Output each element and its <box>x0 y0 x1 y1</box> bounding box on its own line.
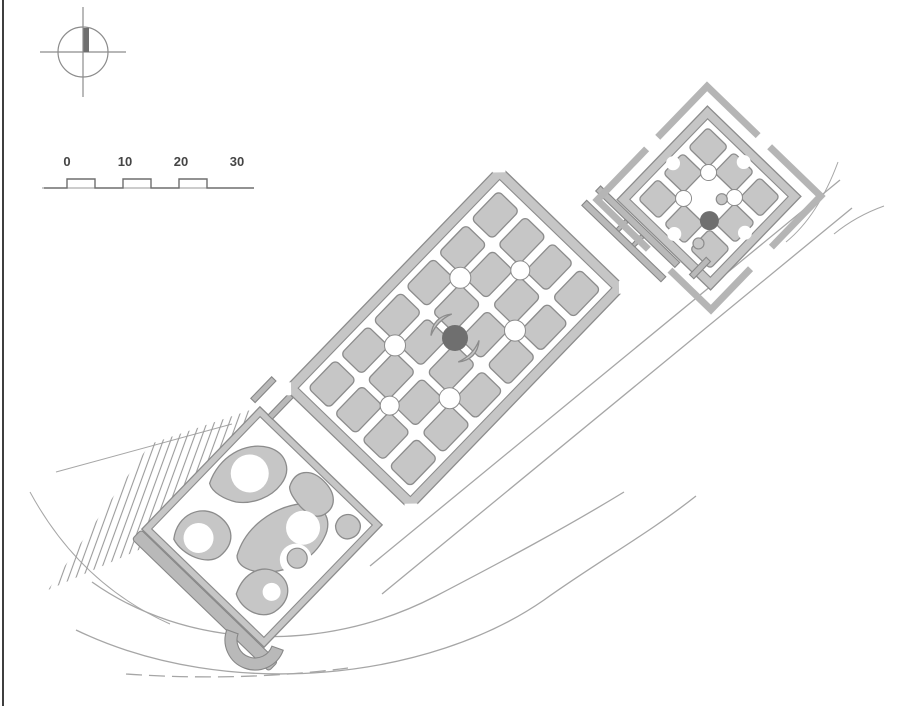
scale-bar: 0 10 20 30 <box>42 154 254 188</box>
connector-rail <box>268 393 293 419</box>
entrance-notch <box>278 382 291 395</box>
entrance-notch <box>492 159 505 172</box>
scale-label-30: 30 <box>230 154 244 169</box>
garden-plan-drawing: 0 10 20 30 <box>0 0 906 720</box>
north-needle <box>84 28 90 52</box>
entrance-notch <box>619 281 632 294</box>
middle-terrace-parterre <box>271 152 639 523</box>
entrance-notch <box>405 504 418 517</box>
road-curve-east <box>834 206 884 234</box>
north-indicator <box>40 7 126 97</box>
connector-rail <box>251 377 276 403</box>
scale-label-10: 10 <box>118 154 132 169</box>
plan-sheet: 0 10 20 30 <box>0 0 906 720</box>
scale-label-20: 20 <box>174 154 188 169</box>
upper-terrace-parterre <box>597 86 820 309</box>
scale-steps <box>44 179 254 188</box>
scale-label-0: 0 <box>63 154 70 169</box>
